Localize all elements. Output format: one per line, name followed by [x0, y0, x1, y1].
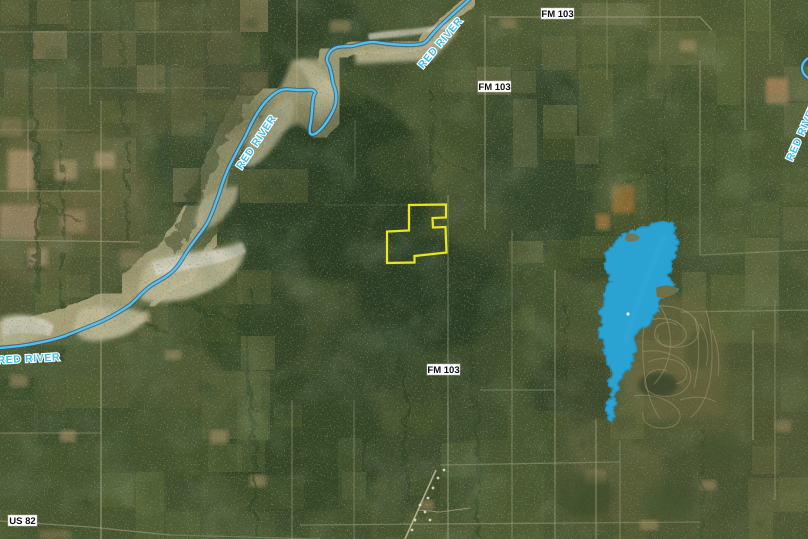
svg-text:FM 103: FM 103: [478, 82, 510, 93]
svg-text:US 82: US 82: [9, 516, 35, 527]
svg-text:FM 103: FM 103: [541, 9, 573, 20]
svg-text:FM 103: FM 103: [427, 365, 459, 376]
